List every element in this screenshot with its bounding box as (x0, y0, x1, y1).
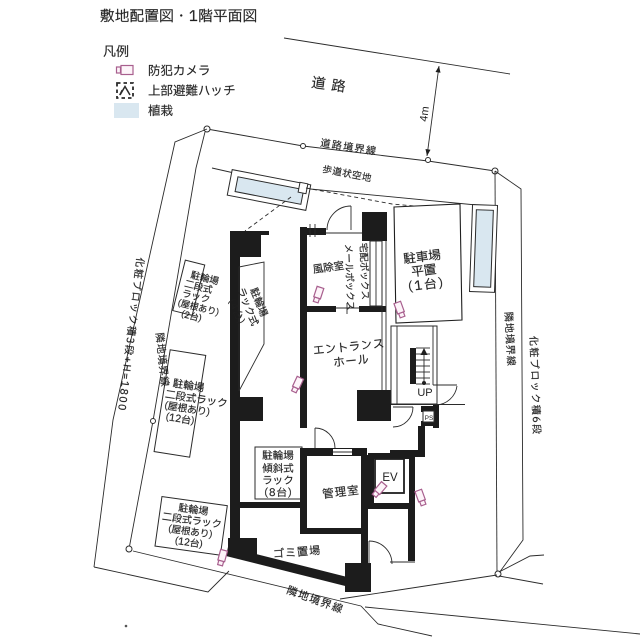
svg-text:PS: PS (425, 415, 434, 422)
svg-text:4m: 4m (418, 106, 432, 123)
svg-text:UP: UP (417, 387, 432, 399)
svg-text:EV: EV (382, 472, 398, 484)
